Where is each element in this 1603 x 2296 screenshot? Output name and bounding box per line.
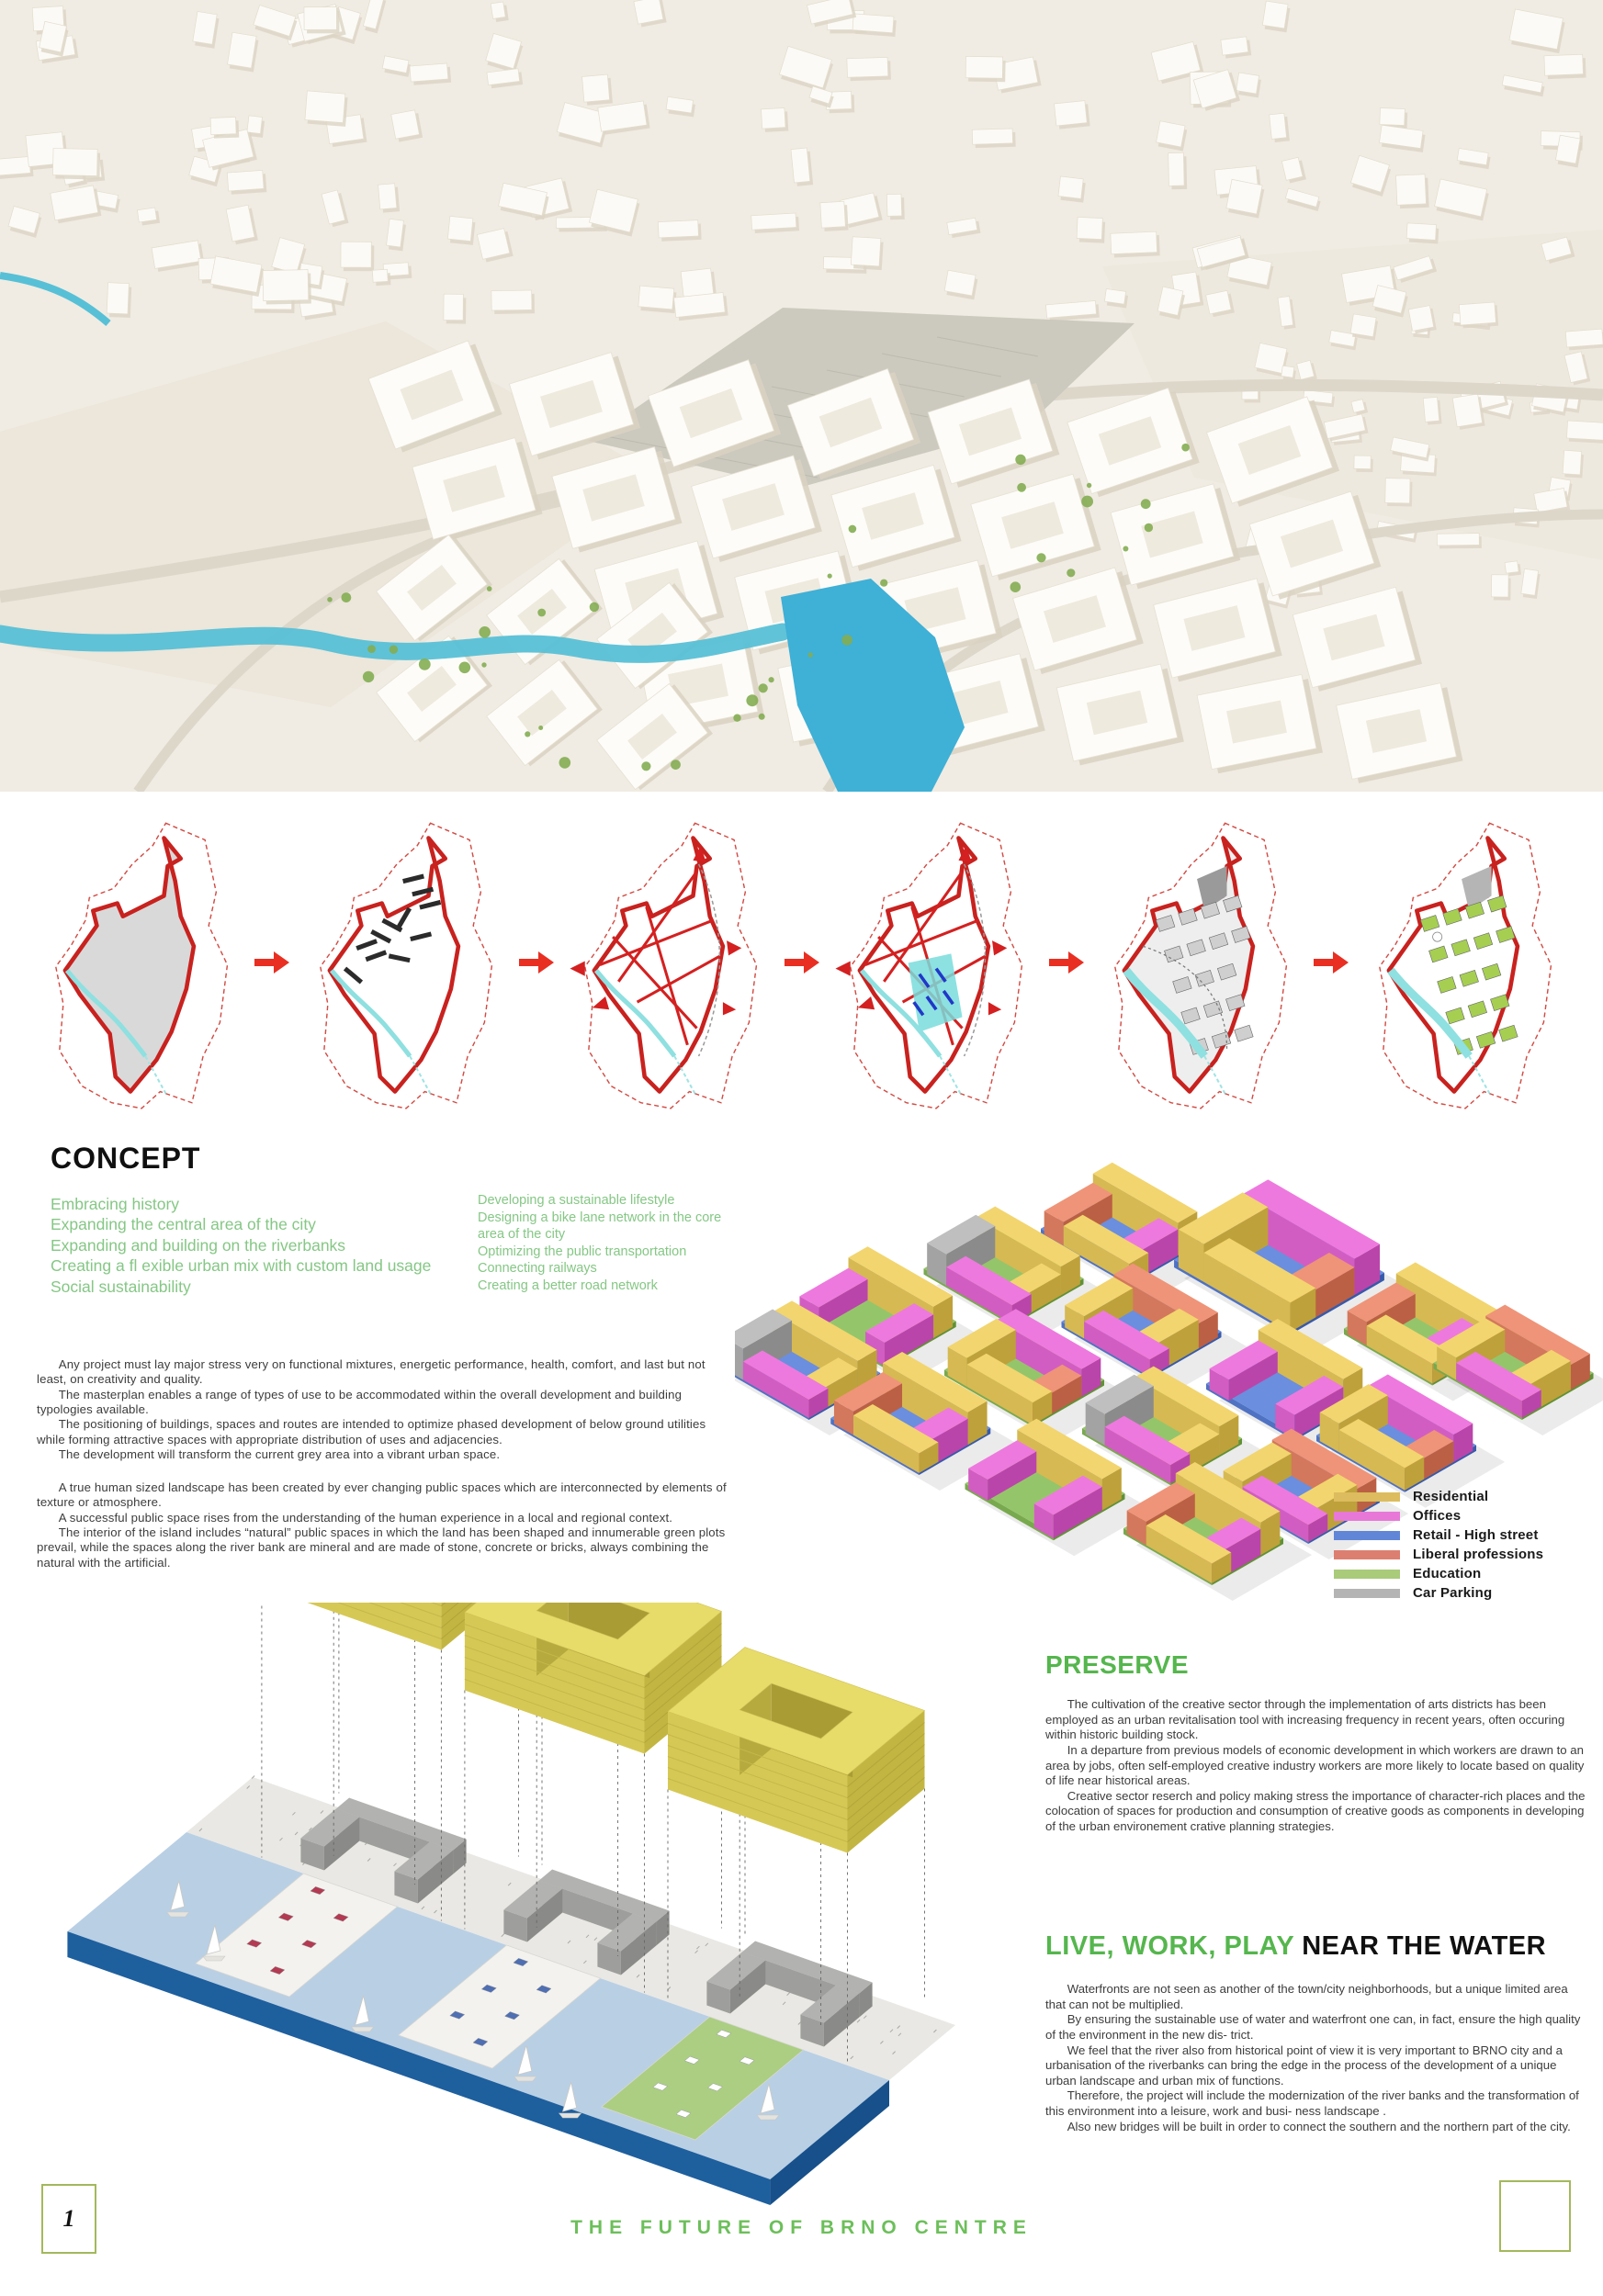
paragraph: The positioning of buildings, spaces and… [37,1417,737,1447]
masterplan-render [0,0,1603,792]
concept-paragraphs-b: A true human sized landscape has been cr… [37,1480,737,1570]
masterplan-render-image [0,0,1603,792]
offices-swatch-icon [1334,1512,1400,1521]
legend-label: Offices [1413,1508,1461,1524]
concept-step-diagram-1 [28,806,252,1119]
poster-title: THE FUTURE OF BRNO CENTRE [0,2217,1603,2239]
concept-step-diagram-3 [557,806,781,1119]
car-parking-swatch-icon [1334,1589,1400,1598]
live-work-play-heading-black: NEAR THE WATER [1294,1931,1546,1961]
legend-label: Retail - High street [1413,1527,1539,1543]
concept-step-diagram-5 [1087,806,1311,1119]
legend-label: Car Parking [1413,1585,1492,1601]
live-work-play-heading-green: LIVE, WORK, PLAY [1045,1931,1294,1961]
legend: Residential Offices Retail - High street… [1334,1487,1573,1603]
step-arrow-icon [252,948,292,977]
legend-label: Liberal professions [1413,1547,1543,1562]
legend-row: Education [1334,1564,1573,1583]
corner-box [1499,2180,1571,2252]
paragraph: The development will transform the curre… [37,1447,737,1462]
paragraph: Waterfronts are not seen as another of t… [1045,1982,1589,2012]
step-arrow-icon [516,948,557,977]
live-work-play-heading: LIVE, WORK, PLAY NEAR THE WATER [1045,1931,1546,1962]
waterfront-exploded-image [32,1603,1020,2213]
concept-step-row [28,804,1575,1120]
concept-paragraphs-a: Any project must lay major stress very o… [37,1357,737,1463]
paragraph: Therefore, the project will include the … [1045,2088,1589,2119]
paragraph: The cultivation of the creative sector t… [1045,1697,1587,1743]
preserve-paragraphs: The cultivation of the creative sector t… [1045,1697,1587,1835]
legend-row: Liberal professions [1334,1545,1573,1564]
poster-page: CONCEPT Embracing history Expanding the … [0,0,1603,2296]
legend-label: Residential [1413,1489,1488,1504]
paragraph: We feel that the river also from histori… [1045,2043,1589,2089]
paragraph: By ensuring the sustainable use of water… [1045,2012,1589,2043]
legend-label: Education [1413,1566,1481,1581]
paragraph: Creative sector reserch and policy makin… [1045,1789,1587,1835]
paragraph: Also new bridges will be built in order … [1045,2120,1589,2135]
paragraph: A successful public space rises from the… [37,1511,737,1525]
paragraph: In a departure from previous models of e… [1045,1743,1587,1789]
concept-step-diagram-2 [292,806,516,1119]
concept-bullets-left: Embracing history Expanding the central … [51,1194,455,1297]
liberal-professions-swatch-icon [1334,1550,1400,1559]
legend-row: Residential [1334,1487,1573,1506]
live-work-play-paragraphs: Waterfronts are not seen as another of t… [1045,1982,1589,2134]
legend-row: Car Parking [1334,1583,1573,1603]
concept-step-diagram-4 [822,806,1046,1119]
concept-step-diagram-6 [1351,806,1575,1119]
paragraph: The interior of the island includes “nat… [37,1525,737,1570]
step-arrow-icon [782,948,822,977]
legend-row: Retail - High street [1334,1525,1573,1545]
concept-heading: CONCEPT [51,1142,200,1176]
paragraph: Any project must lay major stress very o… [37,1357,737,1388]
step-arrow-icon [1311,948,1351,977]
step-arrow-icon [1046,948,1087,977]
preserve-heading: PRESERVE [1045,1650,1189,1680]
paragraph: A true human sized landscape has been cr… [37,1480,737,1511]
paragraph: The masterplan enables a range of types … [37,1388,737,1418]
legend-row: Offices [1334,1506,1573,1525]
retail-swatch-icon [1334,1531,1400,1540]
concept-bullets-right: Developing a sustainable lifestyle Desig… [478,1192,744,1294]
residential-swatch-icon [1334,1492,1400,1502]
waterfront-exploded-diagram [32,1603,1020,2213]
education-swatch-icon [1334,1570,1400,1579]
